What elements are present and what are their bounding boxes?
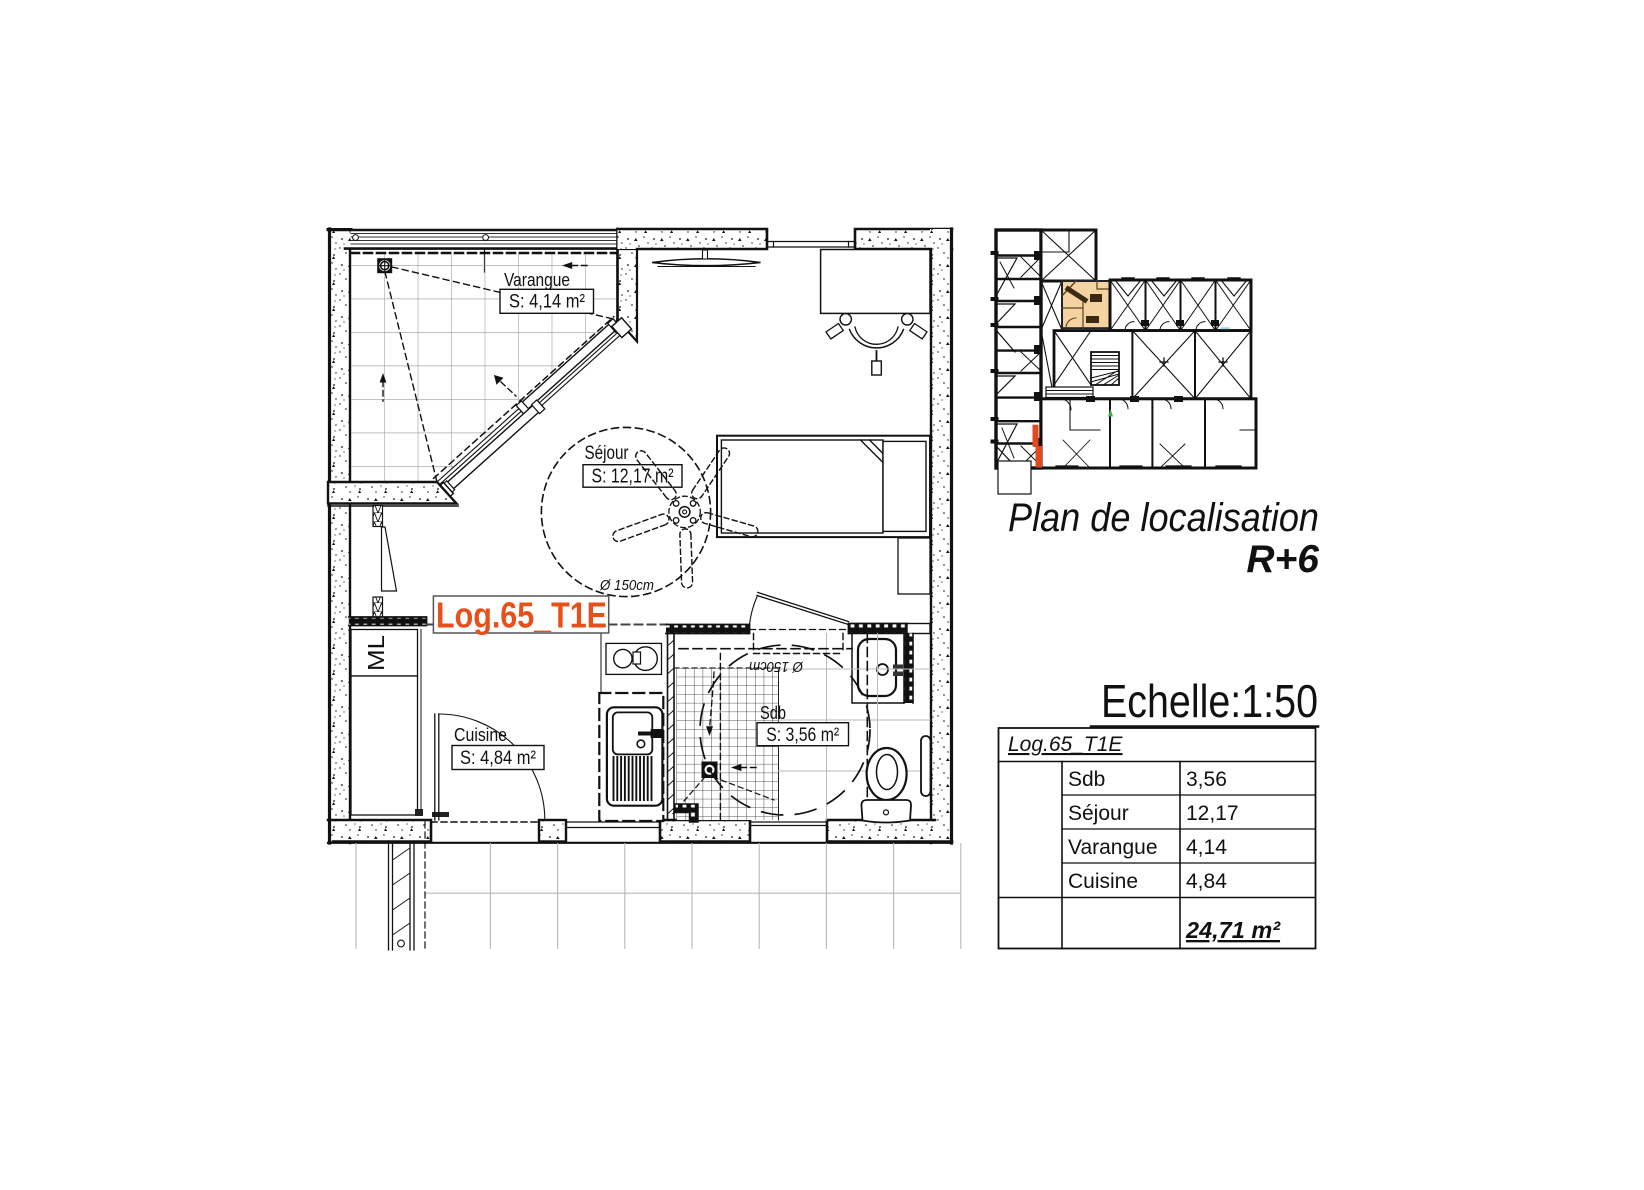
- svg-text:Sdb: Sdb: [760, 703, 786, 723]
- svg-text:Sdb: Sdb: [1068, 768, 1105, 791]
- svg-text:Séjour: Séjour: [585, 443, 630, 464]
- svg-text:S: 3,56 m²: S: 3,56 m²: [766, 725, 839, 746]
- svg-text:ML: ML: [363, 635, 389, 671]
- svg-text:Ø 150cm: Ø 150cm: [749, 658, 804, 674]
- svg-text:Log.65_T1E: Log.65_T1E: [436, 595, 607, 636]
- svg-text:S: 4,14 m²: S: 4,14 m²: [509, 292, 585, 313]
- svg-text:R+6: R+6: [1246, 538, 1319, 581]
- svg-text:Séjour: Séjour: [1068, 802, 1129, 825]
- svg-text:4,84: 4,84: [1186, 870, 1227, 893]
- svg-text:Ø 150cm: Ø 150cm: [599, 578, 654, 594]
- svg-text:24,71 m²: 24,71 m²: [1185, 917, 1281, 943]
- svg-text:Cuisine: Cuisine: [1068, 870, 1138, 893]
- svg-text:4,14: 4,14: [1186, 836, 1227, 859]
- svg-text:Varangue: Varangue: [504, 270, 570, 290]
- svg-text:Plan de localisation: Plan de localisation: [1008, 496, 1319, 540]
- svg-text:12,17: 12,17: [1186, 802, 1239, 825]
- svg-text:S: 4,84 m²: S: 4,84 m²: [460, 748, 536, 769]
- svg-text:3,56: 3,56: [1186, 768, 1227, 791]
- svg-text:Echelle:1:50: Echelle:1:50: [1101, 675, 1318, 727]
- svg-text:Cuisine: Cuisine: [454, 725, 507, 745]
- svg-text:Log.65_T1E: Log.65_T1E: [1008, 733, 1123, 756]
- svg-text:Varangue: Varangue: [1068, 836, 1158, 859]
- svg-text:S: 12,17 m²: S: 12,17 m²: [592, 466, 674, 488]
